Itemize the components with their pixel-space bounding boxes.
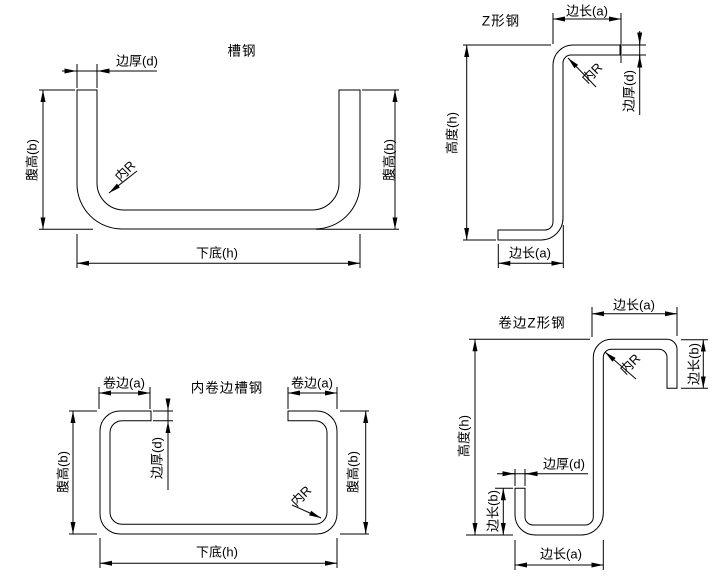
channel-profile-outline xyxy=(77,90,360,229)
lipped-channel-web-height-right-label: 腹高(b) xyxy=(347,451,360,493)
lipped-z-section-profile-drawing xyxy=(466,307,708,570)
lipped-z-section-edge-thickness-label: 边厚(d) xyxy=(543,458,585,471)
channel-edge-thickness-label: 边厚(d) xyxy=(116,55,158,68)
lipped-z-section-height-label: 高度(h) xyxy=(458,415,471,457)
z-section-profile-drawing xyxy=(463,13,646,268)
channel-title: 槽钢 xyxy=(228,44,257,58)
lipped-z-section-bottom-edge-length-label: 边长(a) xyxy=(540,548,582,561)
z-section-edge-thickness-label: 边厚(d) xyxy=(623,70,636,112)
lipped-z-section-top-edge-length-label: 边长(a) xyxy=(613,299,655,312)
z-section-top-edge-length-label: 边长(a) xyxy=(566,5,608,18)
lipped-z-section-title: 卷边Z形钢 xyxy=(498,316,565,330)
lipped-channel-profile-drawing xyxy=(69,387,369,568)
lipped-channel-lip-left-label: 卷边(a) xyxy=(103,377,145,390)
channel-web-height-right-label: 腹高(b) xyxy=(383,139,396,181)
z-section-profile-outline xyxy=(498,45,620,240)
lipped-channel-lip-right-label: 卷边(a) xyxy=(291,377,333,390)
lipped-channel-web-height-left-label: 腹高(b) xyxy=(57,451,70,493)
lipped-channel-edge-thickness-label: 边厚(d) xyxy=(151,437,164,479)
lipped-channel-bottom-width-label: 下底(h) xyxy=(196,546,238,559)
channel-bottom-width-label: 下底(h) xyxy=(196,247,238,260)
technical-drawing-canvas: 槽钢 边厚(d) 腹高(b) 腹高(b) 内R 下底(h) Z形钢 边长(a) … xyxy=(0,0,726,584)
lipped-channel-profile-outline xyxy=(100,411,337,534)
channel-web-height-left-label: 腹高(b) xyxy=(26,139,39,181)
profiles-linework xyxy=(0,0,726,584)
lipped-z-section-left-lip-length-label: 边长(b) xyxy=(487,490,500,532)
lipped-z-section-profile-outline xyxy=(515,339,677,535)
channel-profile-drawing xyxy=(39,64,399,268)
z-section-height-label: 高度(h) xyxy=(446,112,459,154)
z-section-bottom-edge-length-label: 边长(a) xyxy=(509,247,551,260)
lipped-z-section-right-lip-length-label: 边长(b) xyxy=(688,343,701,385)
z-section-title: Z形钢 xyxy=(482,14,520,28)
lipped-channel-title: 内卷边槽钢 xyxy=(191,381,264,395)
